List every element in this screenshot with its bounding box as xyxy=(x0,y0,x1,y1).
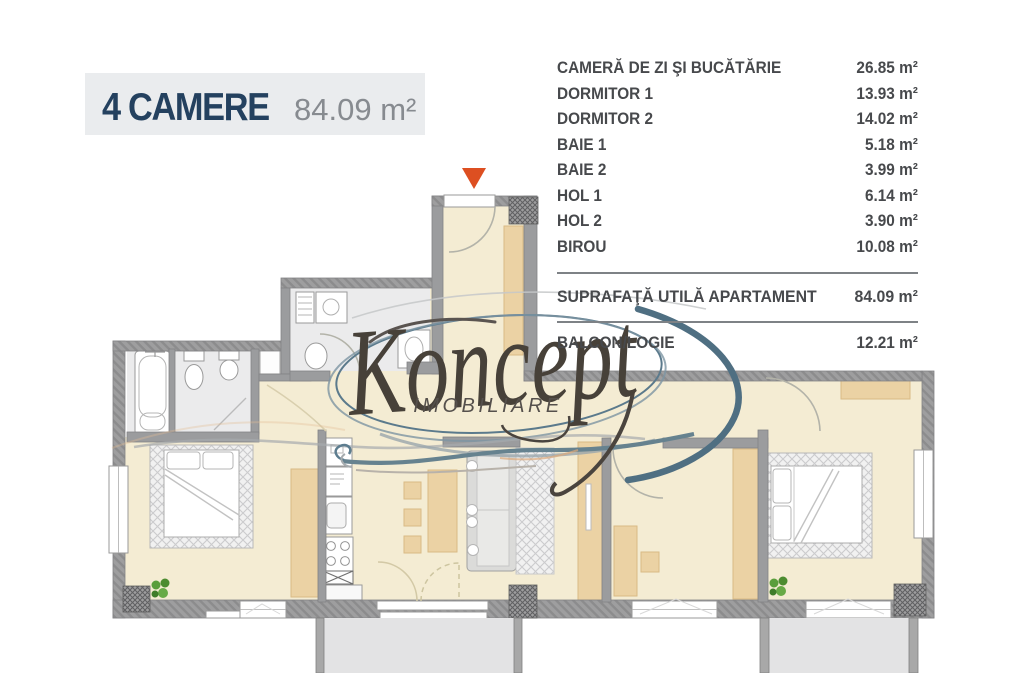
svg-text:Koncept: Koncept xyxy=(341,285,643,443)
svg-text:IMOBILIARE: IMOBILIARE xyxy=(413,395,562,417)
